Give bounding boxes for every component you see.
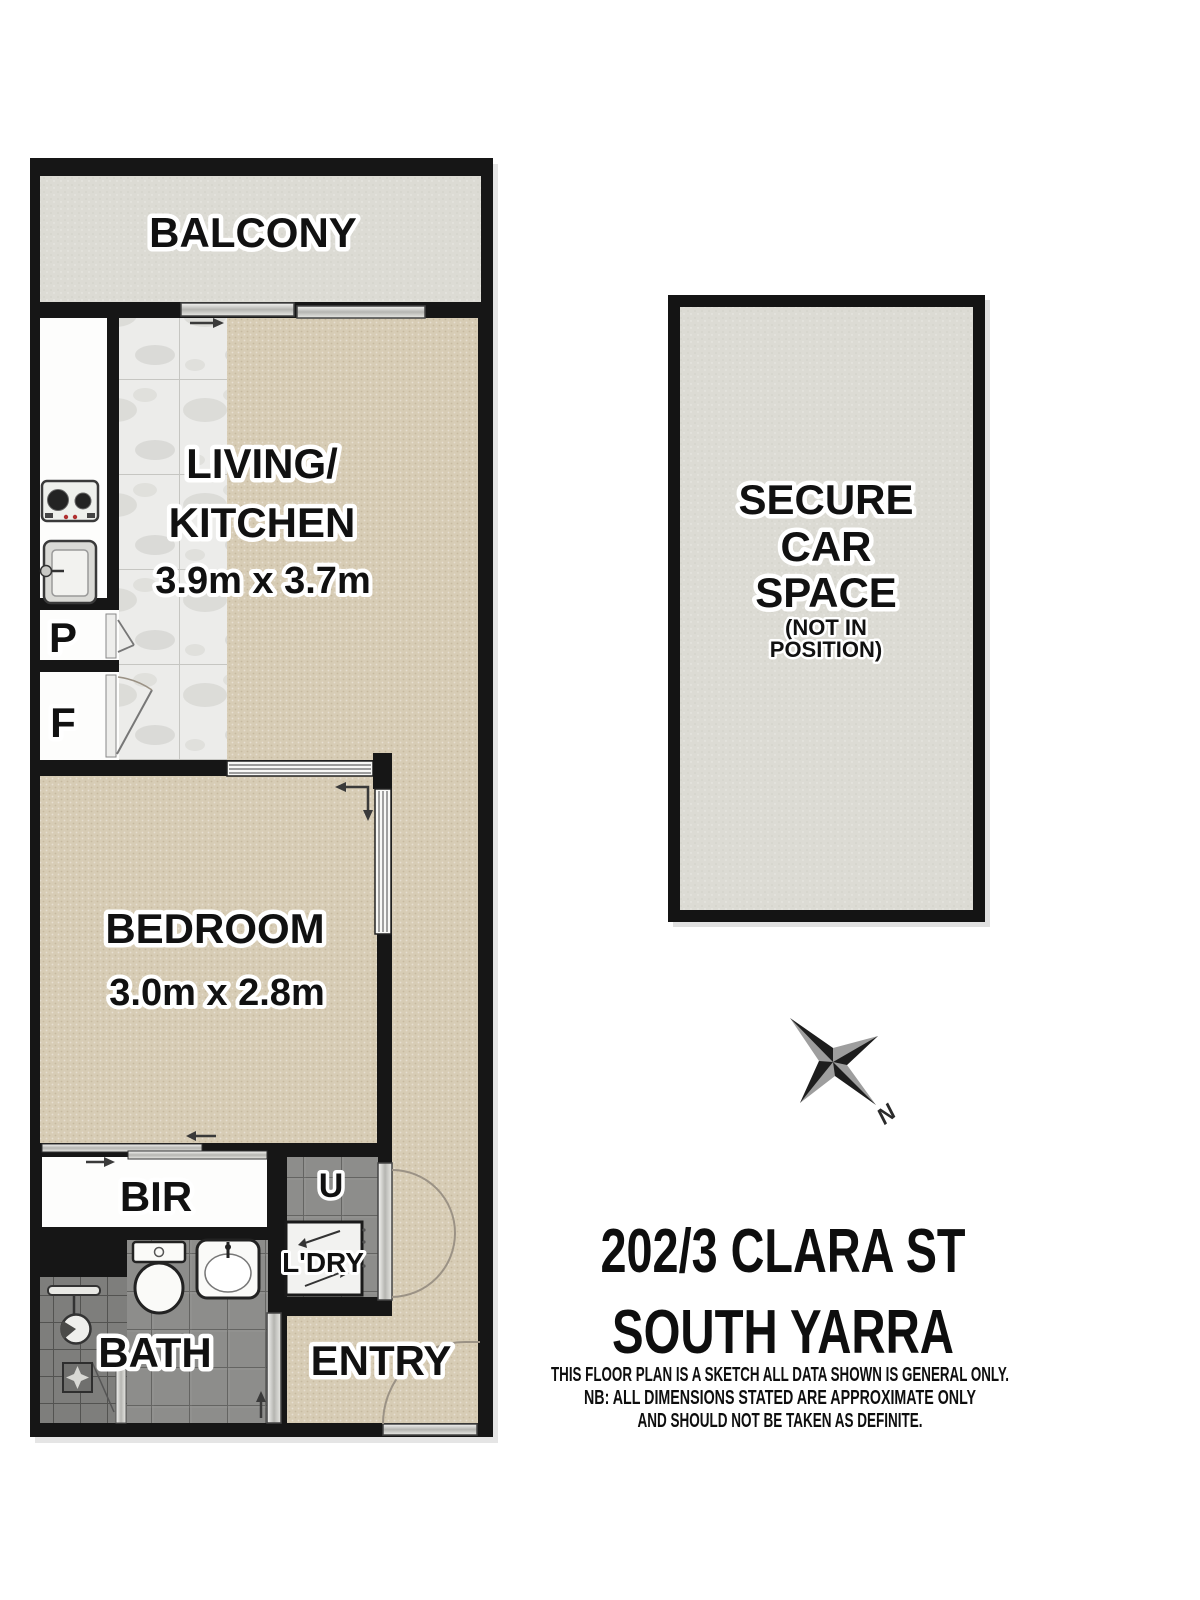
bath-label: BATH — [98, 1329, 212, 1376]
bir-label: BIR — [120, 1173, 192, 1220]
floor-plan-page: BALCONY LIVING/ KITCHEN 3.9m x 3.7m BEDR… — [0, 0, 1200, 1600]
living-kitchen-label-2: KITCHEN — [169, 499, 356, 546]
car-space-label-3: SPACE — [755, 569, 897, 616]
disclaimer-line-1: THIS FLOOR PLAN IS A SKETCH ALL DATA SHO… — [551, 1363, 1009, 1386]
closet-door-jamb — [378, 1163, 392, 1300]
compass: N — [790, 1018, 901, 1129]
laundry-label: L'DRY — [282, 1247, 364, 1278]
fridge-label: F — [50, 699, 76, 746]
bedroom-corner-post — [373, 753, 392, 789]
bath-slider-panel — [267, 1313, 281, 1423]
bath-corner-wall — [40, 1227, 127, 1277]
apartment-plan: BALCONY LIVING/ KITCHEN 3.9m x 3.7m BEDR… — [30, 158, 498, 1443]
address-line-2: SOUTH YARRA — [612, 1298, 954, 1367]
fridge-door-jamb — [106, 675, 116, 757]
address-line-1: 202/3 CLARA ST — [601, 1217, 966, 1286]
balcony-slider-panel-right — [297, 306, 425, 318]
basin-icon — [197, 1240, 259, 1298]
entry-label: ENTRY — [311, 1337, 452, 1384]
address-block: 202/3 CLARA ST SOUTH YARRA THIS FLOOR PL… — [551, 1217, 1009, 1432]
sink-icon — [41, 541, 97, 603]
bir-slider-panel-right — [128, 1151, 267, 1159]
bedroom-label: BEDROOM — [105, 905, 324, 952]
hall-carpet — [392, 760, 478, 1423]
floor-waste-icon — [63, 1363, 92, 1392]
car-space-label-2: CAR — [781, 523, 872, 570]
compass-north-label: N — [871, 1098, 900, 1129]
toilet-icon — [133, 1242, 185, 1313]
car-space-label-1: SECURE — [738, 476, 913, 523]
disclaimer-line-2: NB: ALL DIMENSIONS STATED ARE APPROXIMAT… — [584, 1386, 976, 1409]
entry-door-leaf — [383, 1424, 477, 1435]
car-space-label-5: POSITION) — [770, 637, 882, 662]
living-kitchen-label-1: LIVING/ — [186, 440, 338, 487]
bedroom-dims: 3.0m x 2.8m — [109, 972, 324, 1014]
cooktop-icon — [42, 481, 98, 521]
balcony-slider-panel-left — [181, 303, 294, 316]
floor-plan-svg: BALCONY LIVING/ KITCHEN 3.9m x 3.7m BEDR… — [0, 0, 1200, 1600]
pantry-door-jamb — [106, 614, 116, 658]
disclaimer-line-3: AND SHOULD NOT BE TAKEN AS DEFINITE. — [638, 1409, 923, 1432]
car-space: SECURE CAR SPACE (NOT IN POSITION) — [668, 295, 990, 927]
balcony-label: BALCONY — [149, 209, 357, 256]
pantry-label: P — [49, 614, 77, 661]
bedroom-carpet — [40, 776, 377, 1143]
living-kitchen-dims: 3.9m x 3.7m — [155, 560, 370, 602]
utility-label: U — [319, 1167, 344, 1205]
